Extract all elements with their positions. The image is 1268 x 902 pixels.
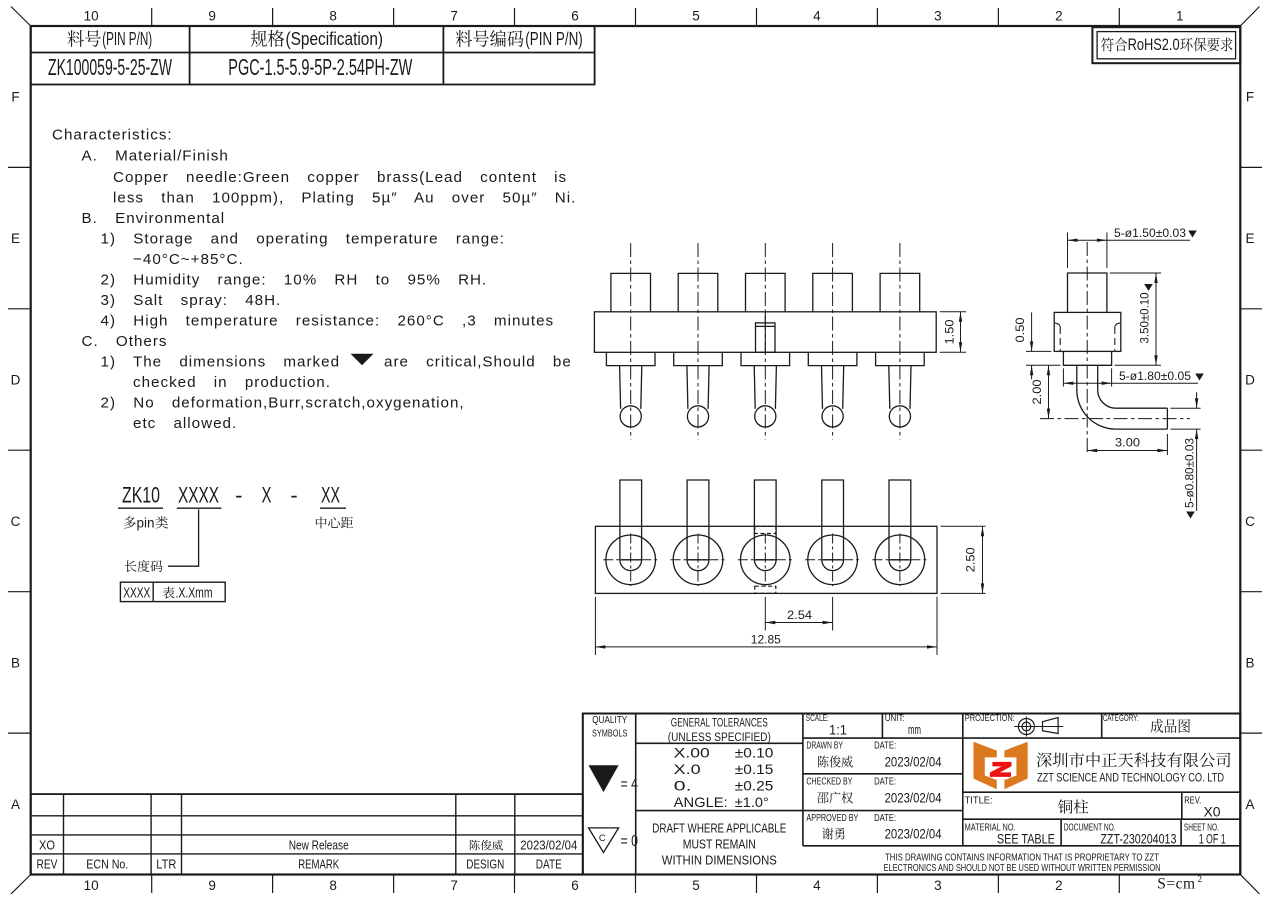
svg-text:X: X [262, 482, 272, 507]
svg-text:1: 1 [1176, 9, 1184, 24]
svg-text:12.85: 12.85 [751, 633, 781, 647]
svg-text:QUALITY: QUALITY [592, 715, 627, 726]
svg-text:4) High temperature resistance: 4) High temperature resistance: 260°C ,3… [101, 313, 555, 330]
svg-text:PROJECTION:: PROJECTION: [965, 713, 1015, 724]
svg-text:pin: pin [137, 516, 155, 531]
svg-text:XXXX: XXXX [123, 585, 150, 601]
svg-text:2.00: 2.00 [1030, 379, 1044, 404]
svg-text:F: F [1246, 90, 1254, 105]
svg-text:(PIN P/N): (PIN P/N) [102, 29, 152, 49]
svg-text:2) Humidity range: 10% RH to 9: 2) Humidity range: 10% RH to 95% RH. [101, 272, 488, 289]
svg-text:.X.Xmm: .X.Xmm [176, 585, 213, 601]
svg-text:mm: mm [908, 722, 921, 737]
svg-text:F: F [11, 90, 19, 105]
svg-text:SYMBOLS: SYMBOLS [592, 728, 628, 739]
svg-text:SEE TABLE: SEE TABLE [997, 831, 1055, 847]
svg-text:−40°C~+85°C.: −40°C~+85°C. [133, 251, 244, 268]
svg-text:REMARK: REMARK [298, 858, 340, 872]
svg-text:Characteristics:: Characteristics: [52, 127, 173, 144]
svg-text:1 OF 1: 1 OF 1 [1199, 831, 1226, 847]
svg-text:8: 8 [329, 878, 337, 893]
svg-text:MUST REMAIN: MUST REMAIN [683, 837, 756, 852]
svg-text:E: E [1245, 231, 1254, 246]
svg-text:X.0: X.0 [674, 761, 701, 777]
svg-text:6: 6 [571, 9, 579, 24]
svg-text:2023/02/04: 2023/02/04 [885, 827, 942, 842]
svg-text:DESIGN: DESIGN [466, 858, 504, 872]
svg-text:APPROVED BY: APPROVED BY [806, 813, 858, 824]
svg-text:D: D [11, 373, 21, 388]
svg-text:less than 100ppm), Plating 5µ″: less than 100ppm), Plating 5µ″ Au over 5… [113, 190, 576, 207]
svg-text:B. Environmental: B. Environmental [82, 210, 226, 227]
svg-text:4: 4 [813, 878, 821, 893]
svg-text:DRAFT WHERE APPLICABLE: DRAFT WHERE APPLICABLE [652, 821, 786, 836]
svg-text:3: 3 [934, 9, 942, 24]
svg-text:2023/02/04: 2023/02/04 [885, 755, 942, 770]
svg-text:C: C [11, 514, 21, 529]
svg-text:TITLE:: TITLE: [965, 796, 993, 807]
svg-text:(Specification): (Specification) [286, 29, 384, 49]
svg-text:XXXX: XXXX [178, 482, 219, 507]
svg-text:3.50±0.10: 3.50±0.10 [1138, 292, 1152, 343]
svg-text:9: 9 [208, 878, 216, 893]
svg-text:etc allowed.: etc allowed. [133, 415, 237, 432]
svg-text:checked in production.: checked in production. [133, 374, 331, 391]
svg-text:10: 10 [84, 878, 99, 893]
svg-text:X0: X0 [1204, 805, 1221, 820]
svg-text:4: 4 [813, 9, 821, 24]
svg-text:0.50: 0.50 [1013, 317, 1027, 342]
svg-text:1.50: 1.50 [943, 319, 957, 344]
svg-text:ZK10: ZK10 [122, 482, 160, 507]
svg-text:= 0: = 0 [621, 833, 639, 850]
svg-text:X.00: X.00 [674, 745, 710, 761]
svg-text:-: - [235, 482, 242, 507]
svg-text:2: 2 [1055, 9, 1063, 24]
svg-text:E: E [11, 231, 20, 246]
svg-text:ZZT SCIENCE AND TECHNOLOGY CO.: ZZT SCIENCE AND TECHNOLOGY CO. LTD [1037, 773, 1224, 785]
svg-text:LTR: LTR [156, 858, 176, 872]
svg-text:New Release: New Release [289, 838, 349, 853]
svg-text:±0.25: ±0.25 [735, 778, 774, 794]
svg-text:DATE: DATE [536, 858, 562, 872]
svg-text:DATE:: DATE: [874, 741, 896, 752]
svg-text:A: A [11, 797, 20, 812]
svg-text:(UNLESS SPECIFIED): (UNLESS SPECIFIED) [668, 732, 771, 744]
svg-text:3: 3 [934, 878, 942, 893]
svg-text:1) Storage and operating tempe: 1) Storage and operating temperature ran… [101, 231, 505, 248]
svg-text:7: 7 [450, 9, 458, 24]
svg-text:3.00: 3.00 [1115, 436, 1140, 450]
svg-text:2: 2 [1055, 878, 1063, 893]
svg-text:2023/02/04: 2023/02/04 [520, 839, 577, 853]
svg-text:UNIT:: UNIT: [885, 713, 905, 724]
svg-text:2.54: 2.54 [787, 608, 812, 622]
svg-text:GENERAL TOLERANCES: GENERAL TOLERANCES [671, 718, 768, 730]
svg-text:WITHIN DIMENSIONS: WITHIN DIMENSIONS [662, 853, 777, 868]
svg-text:Copper needle:Green copper bra: Copper needle:Green copper brass(Lead co… [113, 169, 567, 186]
svg-text:C: C [599, 833, 606, 844]
svg-text:7: 7 [450, 878, 458, 893]
svg-text:RoHS2.0: RoHS2.0 [1128, 35, 1180, 54]
svg-text:CATEGORY:: CATEGORY: [1103, 713, 1139, 724]
svg-text:ELECTRONICS AND SHOULD NOT BE: ELECTRONICS AND SHOULD NOT BE USED WITHO… [884, 862, 1161, 874]
svg-text:ECN No.: ECN No. [86, 858, 128, 872]
svg-text:2023/02/04: 2023/02/04 [885, 791, 942, 806]
svg-text:CHECKED BY: CHECKED BY [806, 777, 852, 788]
svg-text:PGC-1.5-5.9-5P-2.54PH-ZW: PGC-1.5-5.9-5P-2.54PH-ZW [228, 54, 412, 80]
svg-text:3) Salt spray: 48H.: 3) Salt spray: 48H. [101, 292, 282, 309]
svg-text:8: 8 [329, 9, 337, 24]
svg-text:C: C [1245, 514, 1255, 529]
svg-text:XX: XX [321, 482, 340, 507]
svg-text:ZK100059-5-25-ZW: ZK100059-5-25-ZW [48, 54, 172, 80]
svg-text:REV.: REV. [1184, 796, 1201, 807]
svg-text:6: 6 [571, 878, 579, 893]
svg-text:C. Others: C. Others [82, 333, 168, 350]
svg-text:DRAWN BY: DRAWN BY [806, 741, 843, 752]
svg-text:ANGLE:: ANGLE: [674, 794, 728, 810]
svg-text:1) The dimensions marked: 1) The dimensions marked [101, 354, 341, 371]
svg-text:5-ø1.50±0.03: 5-ø1.50±0.03 [1114, 226, 1186, 240]
svg-text:= 4: = 4 [621, 776, 639, 793]
svg-text:9: 9 [208, 9, 216, 24]
svg-text:2) No deformation,Burr,scratch: 2) No deformation,Burr,scratch,oxygenati… [101, 395, 465, 412]
svg-text:10: 10 [84, 9, 99, 24]
svg-text:±0.10: ±0.10 [735, 745, 774, 761]
svg-text:5: 5 [692, 9, 700, 24]
svg-text:1:1: 1:1 [829, 723, 847, 738]
svg-text:DATE:: DATE: [874, 813, 896, 824]
svg-text:REV: REV [37, 858, 59, 872]
svg-text:D: D [1245, 373, 1255, 388]
svg-text:A: A [1245, 797, 1254, 812]
svg-text:2.50: 2.50 [964, 547, 978, 572]
svg-text:SCALE:: SCALE: [806, 713, 829, 724]
svg-text:-: - [290, 482, 297, 507]
svg-text:0.: 0. [674, 778, 692, 794]
svg-text:S=cm: S=cm [1157, 876, 1195, 893]
svg-text:A. Material/Finish: A. Material/Finish [82, 148, 229, 165]
svg-text:5-ø0.80±0.03: 5-ø0.80±0.03 [1182, 438, 1196, 508]
svg-text:ZZT-230204013: ZZT-230204013 [1100, 831, 1176, 847]
svg-text:(PIN P/N): (PIN P/N) [525, 29, 583, 49]
svg-text:are critical,Should be: are critical,Should be [384, 354, 572, 371]
svg-text:DATE:: DATE: [874, 777, 896, 788]
svg-text:XO: XO [39, 838, 55, 853]
svg-text:±1.0°: ±1.0° [735, 794, 769, 810]
svg-text:B: B [11, 655, 20, 670]
svg-text:±0.15: ±0.15 [735, 761, 774, 777]
svg-text:5-ø1.80±0.05: 5-ø1.80±0.05 [1119, 369, 1191, 383]
svg-text:5: 5 [692, 878, 700, 893]
svg-text:B: B [1245, 655, 1254, 670]
